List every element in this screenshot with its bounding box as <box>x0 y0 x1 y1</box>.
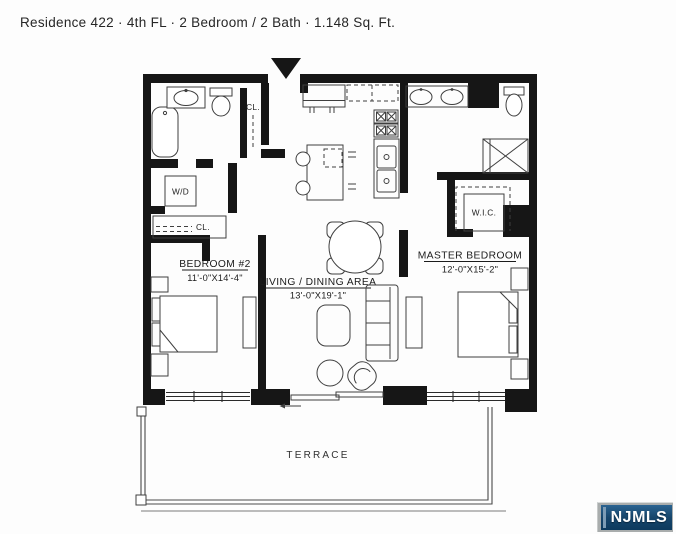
master-window <box>427 391 505 402</box>
dining-set-icon <box>327 221 383 274</box>
njmls-logo: NJMLS <box>597 502 673 532</box>
living-dims: 13'-0"X19'-1" <box>290 291 346 301</box>
kitchen-sink-icon <box>374 139 399 198</box>
master-toilet-icon <box>504 87 524 116</box>
stove-icon <box>374 110 398 137</box>
bedroom2-closet-label: CL. <box>196 222 210 232</box>
kitchen-island-icon <box>296 145 356 200</box>
coffee-table-icon <box>317 305 350 346</box>
floor-plan-page: Residence 422 · 4th FL · 2 Bedroom / 2 B… <box>0 0 676 534</box>
floor-plan-drawing: CL. W/D CL. BEDROOM #2 11'-0"X14'-4" <box>0 0 676 534</box>
sofa-icon <box>366 285 398 361</box>
njmls-logo-text: NJMLS <box>606 509 668 527</box>
bedroom2-dims: 11'-0"X14'-4" <box>187 273 242 283</box>
master-vanity-icon <box>406 86 468 107</box>
kitchen-counter-icon <box>303 85 398 113</box>
njmls-logo-body: NJMLS <box>601 505 672 530</box>
njmls-logo-stripe <box>603 507 606 528</box>
entry-closet-label: CL. <box>246 102 260 112</box>
master-room-label: MASTER BEDROOM 12'-0"X15'-2" <box>418 251 523 275</box>
master-dresser-icon <box>406 297 422 348</box>
washer-dryer-label: W/D <box>172 187 189 197</box>
shower-icon <box>483 139 528 173</box>
entry-arrow-icon <box>271 58 301 79</box>
bedroom2-bed-icon <box>151 277 217 376</box>
bedroom2-dresser-icon <box>243 297 256 348</box>
washer-dryer-icon: W/D <box>165 176 196 206</box>
walk-in-closet: W.I.C. <box>456 187 510 231</box>
entry-closet: CL. <box>246 102 260 150</box>
bedroom2-closet: CL. <box>153 216 226 238</box>
ottoman-icon <box>317 360 343 386</box>
terrace: TERRACE <box>136 407 506 511</box>
living-name: LIVING / DINING AREA <box>260 277 377 288</box>
master-name: MASTER BEDROOM <box>418 251 523 262</box>
living-room-label: LIVING / DINING AREA 13'-0"X19'-1" <box>260 277 377 301</box>
terrace-label: TERRACE <box>286 450 349 461</box>
master-bed-icon <box>458 268 528 379</box>
bathtub-icon <box>152 107 178 157</box>
bedroom2-name: BEDROOM #2 <box>179 259 251 270</box>
bathroom2-toilet-icon <box>210 88 232 116</box>
wic-label: W.I.C. <box>472 208 496 218</box>
sliding-door <box>280 392 384 409</box>
bathroom2-sink-icon <box>167 87 205 108</box>
master-dims: 12'-0"X15'-2" <box>442 265 498 275</box>
armchair-icon <box>344 358 381 395</box>
bedroom2-window <box>166 391 250 402</box>
bedroom2-room-label: BEDROOM #2 11'-0"X14'-4" <box>179 259 251 283</box>
